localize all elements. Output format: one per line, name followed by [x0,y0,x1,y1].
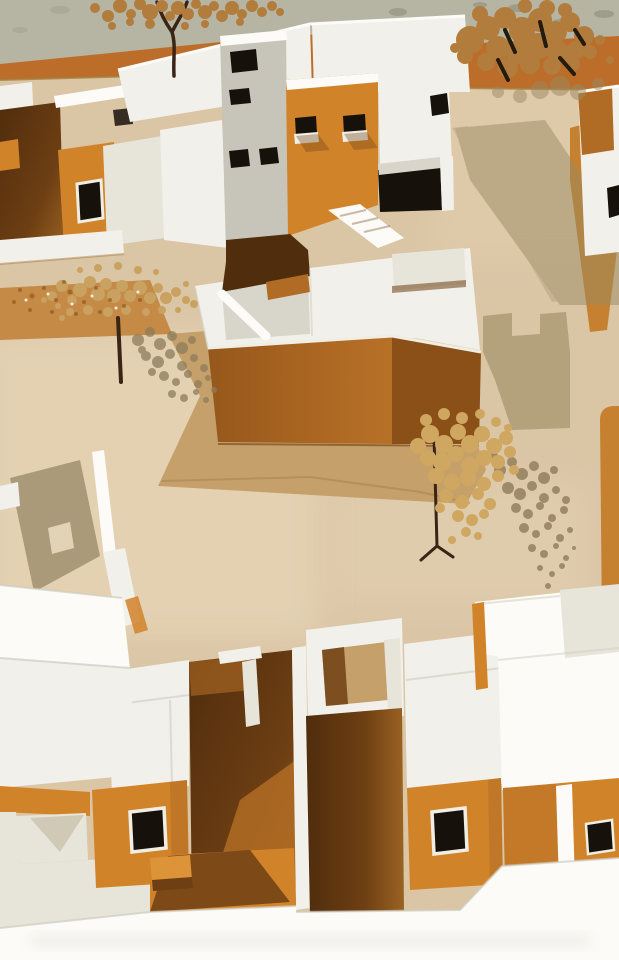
photo-architectural-model [0,0,619,960]
window-top-left-house [77,180,103,222]
planter-box [150,855,193,891]
window-right-courtyard [586,820,614,854]
right-edge-house [578,86,619,256]
wing-window [430,93,449,116]
window-bottom-right-house [432,808,467,854]
model-photo-canvas [0,0,619,960]
right-edge-window [607,185,619,218]
central-orange-cube [208,336,481,446]
window-bottom-left-house [130,808,166,852]
